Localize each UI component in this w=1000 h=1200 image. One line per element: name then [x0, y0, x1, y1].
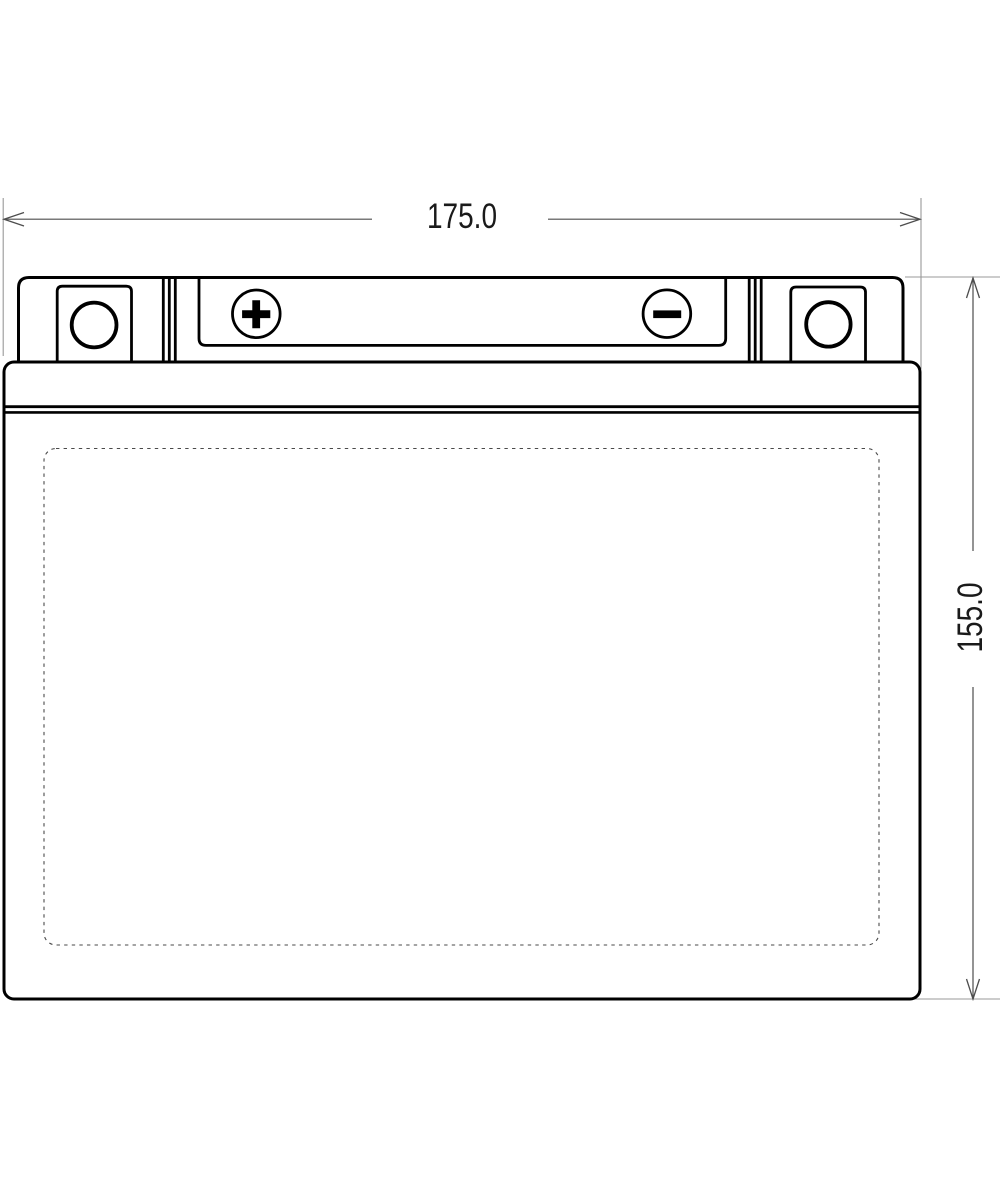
svg-text:175.0: 175.0 — [427, 196, 497, 236]
svg-text:155.0: 155.0 — [950, 582, 990, 652]
